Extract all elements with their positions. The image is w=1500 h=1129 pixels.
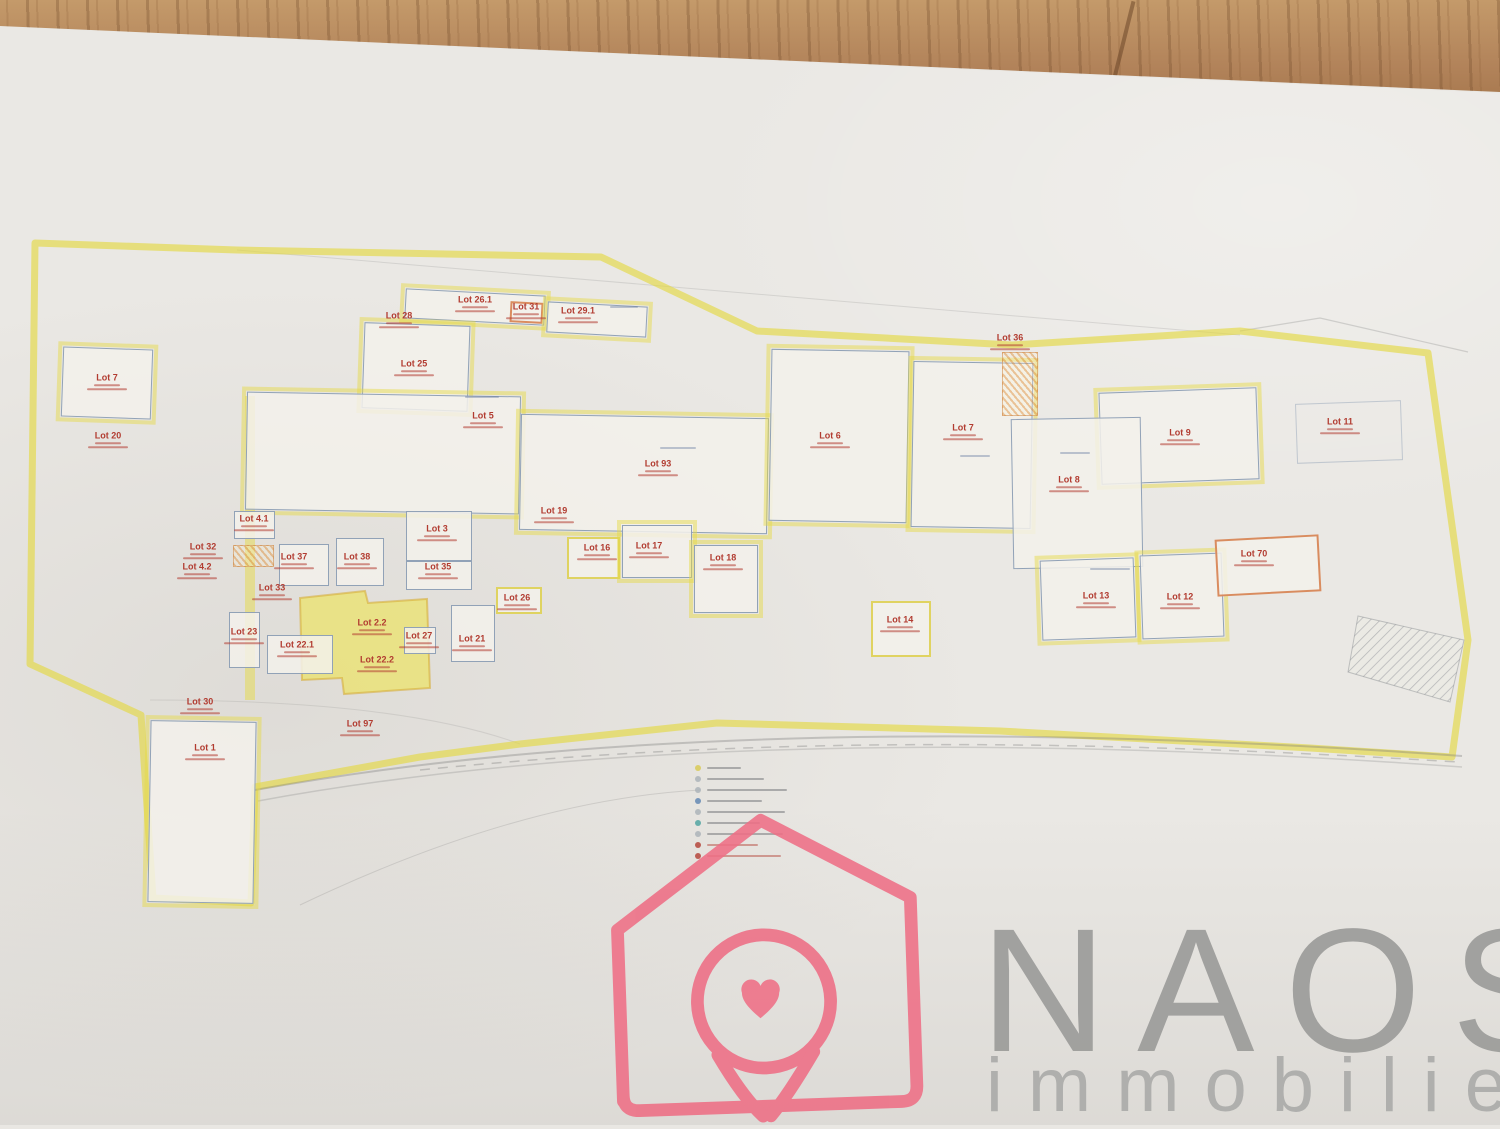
lot-label: Lot 19 xyxy=(534,506,574,523)
lot-label: Lot 29.1 xyxy=(558,306,598,323)
lot-label: Lot 30 xyxy=(180,697,220,714)
lot-label: Lot 6 xyxy=(810,431,850,448)
legend-text-illegible xyxy=(707,789,787,791)
lot-label: Lot 7 xyxy=(87,373,127,390)
annotation-mark xyxy=(660,447,696,449)
lot-label: Lot 9 xyxy=(1160,428,1200,445)
lot-label: Lot 35 xyxy=(418,562,458,579)
annotation-mark xyxy=(465,396,499,398)
legend-symbol xyxy=(695,776,701,782)
lot-label: Lot 12 xyxy=(1160,592,1200,609)
naos-house-pin-heart-logo xyxy=(582,792,992,1125)
annotation-mark xyxy=(610,306,638,308)
lot-parcel-box xyxy=(1011,417,1144,569)
lot-label: Lot 2.2 xyxy=(352,618,392,635)
legend-row xyxy=(695,762,787,773)
lot-label: Lot 11 xyxy=(1320,417,1360,434)
hatched-area xyxy=(233,545,274,567)
lot-label: Lot 5 xyxy=(463,411,503,428)
annotation-mark xyxy=(960,455,990,457)
lot-label: Lot 32 xyxy=(183,542,223,559)
lot-label: Lot 70 xyxy=(1234,549,1274,566)
lot-label: Lot 36 xyxy=(990,333,1030,350)
hatched-area xyxy=(1002,352,1038,416)
lot-label: Lot 22.2 xyxy=(357,655,397,672)
lot-label: Lot 18 xyxy=(703,553,743,570)
brand-subtitle: immobilier xyxy=(986,1042,1500,1129)
lot-label: Lot 1 xyxy=(185,743,225,760)
legend-row xyxy=(695,773,787,784)
annotation-mark xyxy=(1090,568,1130,570)
lot-label: Lot 13 xyxy=(1076,591,1116,608)
lot-label: Lot 17 xyxy=(629,541,669,558)
legend-text-illegible xyxy=(707,767,741,769)
lot-label: Lot 97 xyxy=(340,719,380,736)
annotation-mark xyxy=(1060,452,1090,454)
hatched-strip xyxy=(1348,616,1464,702)
lot-label: Lot 7 xyxy=(943,423,983,440)
lot-label: Lot 37 xyxy=(274,552,314,569)
legend-symbol xyxy=(695,765,701,771)
lot-label: Lot 21 xyxy=(452,634,492,651)
lot-label: Lot 4.1 xyxy=(234,514,274,531)
lot-label: Lot 28 xyxy=(379,311,419,328)
lot-label: Lot 4.2 xyxy=(177,562,217,579)
legend-text-illegible xyxy=(707,778,764,780)
lot-label: Lot 23 xyxy=(224,627,264,644)
lot-label: Lot 93 xyxy=(638,459,678,476)
lot-label: Lot 16 xyxy=(577,543,617,560)
road-line xyxy=(255,736,1462,790)
lot-label: Lot 33 xyxy=(252,583,292,600)
lot-label: Lot 22.1 xyxy=(277,640,317,657)
lot-label: Lot 20 xyxy=(88,431,128,448)
lot-label: Lot 26 xyxy=(497,593,537,610)
lot-label: Lot 3 xyxy=(417,524,457,541)
lot-label: Lot 25 xyxy=(394,359,434,376)
photo-of-site-plan: { "watermark": { "brand": "NAOS", "subti… xyxy=(0,0,1500,1125)
lot-label: Lot 38 xyxy=(337,552,377,569)
lot-label: Lot 26.1 xyxy=(455,295,495,312)
lot-label: Lot 14 xyxy=(880,615,920,632)
lot-label: Lot 8 xyxy=(1049,475,1089,492)
lot-label: Lot 27 xyxy=(399,631,439,648)
heart-icon xyxy=(741,979,779,1018)
lot-label: Lot 31 xyxy=(506,302,546,319)
